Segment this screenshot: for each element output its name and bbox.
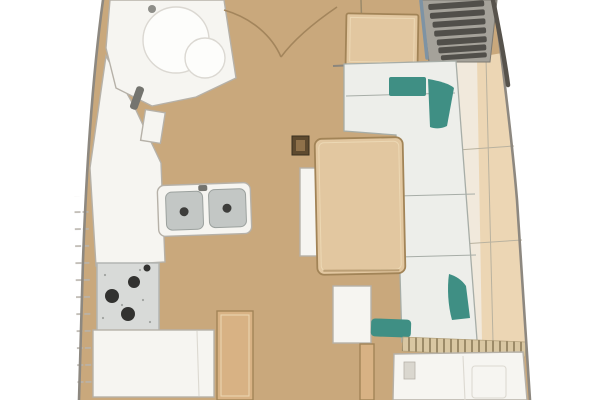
- table-top: [315, 137, 406, 275]
- yacht-floor-plan: [0, 0, 600, 400]
- sink-faucet: [198, 185, 207, 191]
- galley-stove: [97, 263, 159, 331]
- wood-bench: [217, 311, 253, 400]
- settee-end-cabinet: [333, 286, 371, 343]
- aft-desk: [393, 352, 527, 400]
- galley-lower-cabinet: [93, 330, 214, 397]
- wash-basin-bowl: [185, 38, 225, 78]
- desk-instrument: [404, 362, 415, 379]
- burner: [105, 289, 119, 303]
- burner-small: [144, 265, 151, 272]
- saloon-table: [315, 137, 406, 275]
- galley-sink-unit: [157, 182, 252, 236]
- companionway-steps: [421, 0, 497, 62]
- burner: [121, 307, 135, 321]
- mast-post: [292, 136, 309, 155]
- burner: [128, 276, 140, 288]
- basin-tap-knob: [148, 5, 156, 13]
- galley-wood-bench: [217, 311, 253, 400]
- teal-cushion-aft: [371, 318, 412, 337]
- floor-plan-canvas: [0, 0, 600, 400]
- companionway-landing: [346, 13, 419, 66]
- aft-wood-trim: [360, 344, 374, 400]
- landing-box: [346, 13, 419, 66]
- teal-cushion-forward: [389, 77, 426, 96]
- mast-post-core: [296, 140, 305, 151]
- head-small-locker: [141, 110, 166, 144]
